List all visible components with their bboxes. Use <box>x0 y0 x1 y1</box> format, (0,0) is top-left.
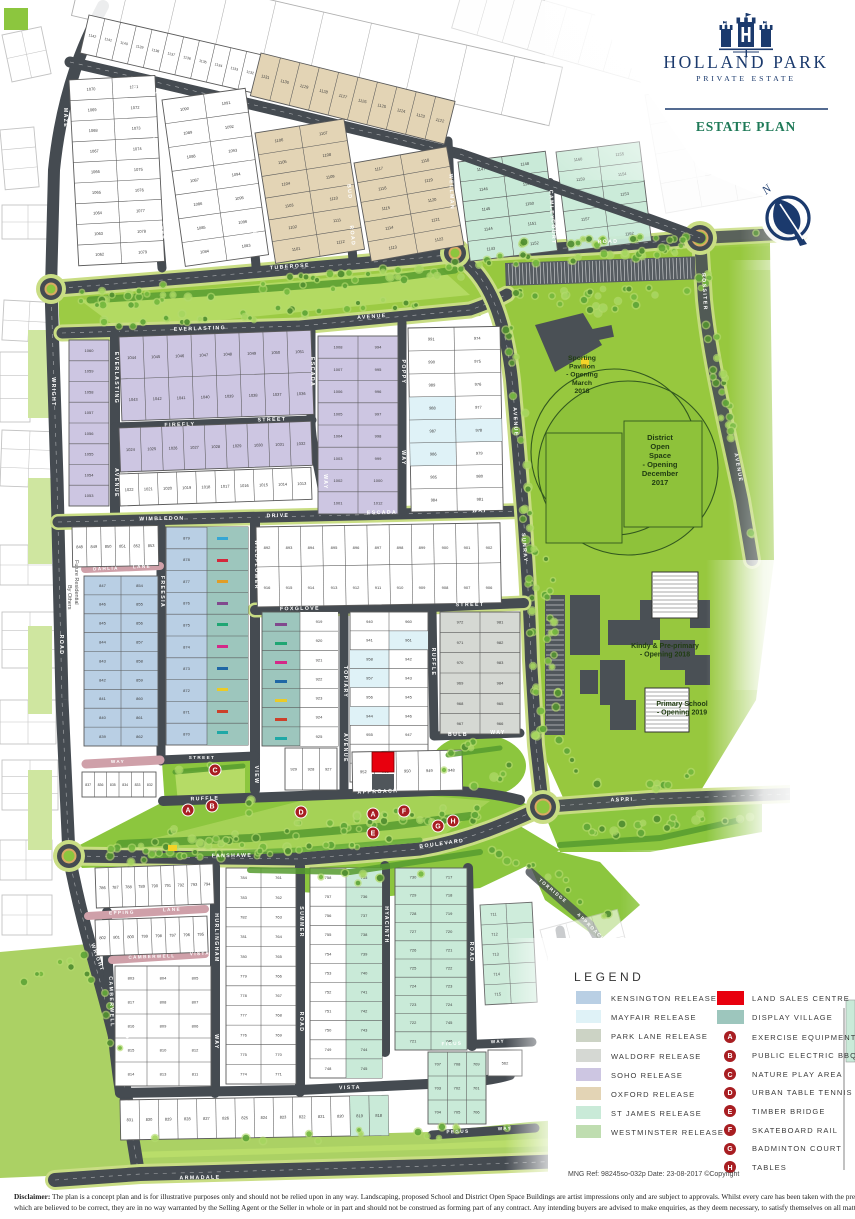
svg-text:804: 804 <box>160 975 167 980</box>
svg-text:909: 909 <box>419 585 426 590</box>
svg-text:1042: 1042 <box>153 396 163 401</box>
svg-text:FOXGLOVE: FOXGLOVE <box>280 606 320 613</box>
svg-text:1070: 1070 <box>86 86 96 91</box>
svg-text:715: 715 <box>494 991 502 996</box>
svg-text:960: 960 <box>405 619 412 624</box>
svg-text:858: 858 <box>136 658 143 663</box>
svg-text:908: 908 <box>442 585 449 590</box>
svg-text:PUBLIC ELECTRIC BBQ: PUBLIC ELECTRIC BBQ <box>752 1051 855 1060</box>
svg-text:801: 801 <box>113 935 121 940</box>
svg-text:CRESCENT: CRESCENT <box>64 158 70 198</box>
svg-text:981: 981 <box>477 497 485 502</box>
svg-text:1041: 1041 <box>177 395 187 400</box>
svg-text:ASPRI: ASPRI <box>610 797 633 804</box>
svg-text:WELLMAN: WELLMAN <box>447 174 454 210</box>
svg-text:WILDFLOWER: WILDFLOWER <box>253 540 259 590</box>
svg-text:1003: 1003 <box>334 456 344 461</box>
svg-text:811: 811 <box>192 1071 199 1076</box>
svg-text:MAYFAIR RELEASE: MAYFAIR RELEASE <box>611 1013 697 1022</box>
svg-text:707: 707 <box>434 1061 441 1066</box>
svg-text:ROAD: ROAD <box>597 239 618 246</box>
svg-text:873: 873 <box>183 666 190 671</box>
svg-text:846: 846 <box>99 602 106 607</box>
svg-text:1019: 1019 <box>182 485 192 490</box>
svg-text:- Opening: - Opening <box>566 372 598 379</box>
svg-text:B: B <box>727 1053 732 1060</box>
svg-text:741: 741 <box>361 990 368 995</box>
svg-text:762: 762 <box>275 895 282 900</box>
svg-text:853: 853 <box>148 543 156 548</box>
svg-text:1032: 1032 <box>296 441 306 446</box>
svg-text:921: 921 <box>316 657 323 662</box>
svg-text:852: 852 <box>133 543 141 548</box>
svg-text:Kindy & Pre-primary: Kindy & Pre-primary <box>631 643 699 650</box>
svg-text:798: 798 <box>155 933 163 938</box>
svg-text:720: 720 <box>446 929 453 934</box>
svg-text:776: 776 <box>240 1032 247 1037</box>
svg-text:789: 789 <box>138 884 146 889</box>
svg-text:944: 944 <box>366 713 373 718</box>
svg-text:723: 723 <box>446 984 453 989</box>
svg-text:723: 723 <box>410 1002 417 1007</box>
svg-text:948: 948 <box>448 768 456 773</box>
svg-text:769: 769 <box>275 1032 282 1037</box>
svg-text:851: 851 <box>119 543 127 548</box>
svg-text:914: 914 <box>308 585 315 590</box>
svg-text:FIREFLY: FIREFLY <box>164 421 195 428</box>
svg-text:915: 915 <box>286 585 293 590</box>
svg-text:EPPING: EPPING <box>109 910 135 916</box>
svg-text:1045: 1045 <box>151 354 161 359</box>
svg-text:969: 969 <box>457 681 464 686</box>
svg-text:HOLLAND PARK: HOLLAND PARK <box>663 52 828 72</box>
svg-text:ROAD: ROAD <box>298 1012 304 1033</box>
svg-text:861: 861 <box>136 715 143 720</box>
svg-text:806: 806 <box>192 1023 199 1028</box>
svg-text:777: 777 <box>240 1013 247 1018</box>
svg-text:812: 812 <box>192 1047 199 1052</box>
svg-text:ST JAMES RELEASE: ST JAMES RELEASE <box>611 1109 702 1118</box>
svg-text:E: E <box>371 830 376 837</box>
svg-text:927: 927 <box>325 766 332 771</box>
svg-text:1002: 1002 <box>334 478 344 483</box>
svg-text:E: E <box>728 1109 733 1116</box>
svg-text:906: 906 <box>486 585 493 590</box>
svg-text:WALDORF RELEASE: WALDORF RELEASE <box>611 1052 701 1061</box>
svg-text:1060: 1060 <box>85 348 95 353</box>
svg-text:1078: 1078 <box>137 229 147 234</box>
svg-text:896: 896 <box>353 545 360 550</box>
svg-text:721: 721 <box>446 947 453 952</box>
svg-text:H: H <box>450 818 455 825</box>
svg-text:- Opening: - Opening <box>643 460 678 469</box>
svg-text:976: 976 <box>475 382 483 387</box>
svg-text:737: 737 <box>361 913 368 918</box>
svg-text:985: 985 <box>430 474 438 479</box>
svg-text:832: 832 <box>147 783 153 787</box>
svg-text:996: 996 <box>375 389 382 394</box>
svg-text:745: 745 <box>446 1020 453 1025</box>
svg-text:919: 919 <box>316 619 323 624</box>
svg-text:752: 752 <box>325 990 332 995</box>
svg-text:EVERLASTING: EVERLASTING <box>113 352 119 404</box>
svg-text:898: 898 <box>397 545 404 550</box>
svg-text:826: 826 <box>222 1115 230 1120</box>
svg-text:AVENUE: AVENUE <box>113 468 119 498</box>
svg-text:913: 913 <box>331 585 338 590</box>
svg-text:Open: Open <box>650 442 670 451</box>
svg-text:878: 878 <box>183 557 190 562</box>
svg-text:724: 724 <box>410 984 417 989</box>
svg-text:796: 796 <box>183 932 191 937</box>
svg-text:701: 701 <box>473 1085 480 1090</box>
svg-text:1055: 1055 <box>85 452 95 457</box>
svg-text:943: 943 <box>405 676 412 681</box>
svg-text:STREET: STREET <box>257 416 286 423</box>
svg-text:728: 728 <box>410 911 417 916</box>
svg-text:952: 952 <box>360 769 368 774</box>
svg-text:982: 982 <box>497 640 504 645</box>
svg-text:945: 945 <box>405 694 412 699</box>
svg-text:961: 961 <box>405 638 412 643</box>
svg-text:823: 823 <box>280 1114 288 1119</box>
svg-text:784: 784 <box>240 875 247 880</box>
svg-text:892: 892 <box>264 545 271 550</box>
svg-text:940: 940 <box>366 619 373 624</box>
svg-text:983: 983 <box>497 660 504 665</box>
svg-text:1008: 1008 <box>334 345 344 350</box>
svg-text:750: 750 <box>325 1028 332 1033</box>
svg-text:856: 856 <box>136 621 143 626</box>
svg-text:978: 978 <box>475 428 483 433</box>
svg-text:793: 793 <box>191 882 199 887</box>
svg-text:899: 899 <box>419 545 426 550</box>
svg-text:703: 703 <box>434 1085 441 1090</box>
svg-text:922: 922 <box>316 676 323 681</box>
svg-text:ESCADA: ESCADA <box>309 357 315 387</box>
svg-text:WAY: WAY <box>491 1039 505 1044</box>
svg-text:1014: 1014 <box>278 482 288 487</box>
svg-text:1049: 1049 <box>247 351 257 356</box>
svg-text:781: 781 <box>240 934 247 939</box>
svg-text:1024: 1024 <box>126 447 136 452</box>
svg-text:834: 834 <box>122 783 128 787</box>
svg-text:803: 803 <box>128 975 135 980</box>
svg-text:824: 824 <box>261 1115 269 1120</box>
svg-text:835: 835 <box>110 783 116 787</box>
svg-text:1066: 1066 <box>91 169 101 174</box>
svg-text:1015: 1015 <box>259 482 269 487</box>
svg-text:816: 816 <box>128 1023 135 1028</box>
svg-text:876: 876 <box>183 601 190 606</box>
svg-text:840: 840 <box>99 715 106 720</box>
svg-text:987: 987 <box>429 428 437 433</box>
svg-text:ESCADA: ESCADA <box>367 510 397 517</box>
svg-text:1063: 1063 <box>94 231 104 236</box>
svg-text:754: 754 <box>325 951 332 956</box>
svg-text:770: 770 <box>275 1052 282 1057</box>
svg-text:721: 721 <box>410 1038 417 1043</box>
svg-text:787: 787 <box>112 885 120 890</box>
svg-text:1036: 1036 <box>297 391 307 396</box>
svg-text:1031: 1031 <box>275 442 285 447</box>
svg-text:1046: 1046 <box>175 353 185 358</box>
svg-text:724: 724 <box>446 1002 453 1007</box>
svg-text:B: B <box>209 803 214 810</box>
svg-text:855: 855 <box>136 602 143 607</box>
svg-text:HURLINGHAM: HURLINGHAM <box>213 913 219 962</box>
svg-text:950: 950 <box>404 768 412 773</box>
svg-text:1005: 1005 <box>334 411 344 416</box>
svg-text:756: 756 <box>325 913 332 918</box>
svg-text:862: 862 <box>136 734 143 739</box>
svg-text:901: 901 <box>464 545 471 550</box>
svg-text:Space: Space <box>649 451 671 460</box>
svg-text:1076: 1076 <box>135 187 145 192</box>
svg-text:736: 736 <box>361 894 368 899</box>
svg-text:WAY: WAY <box>322 474 328 490</box>
svg-text:949: 949 <box>426 768 434 773</box>
svg-text:763: 763 <box>275 915 282 920</box>
svg-text:910: 910 <box>397 585 404 590</box>
svg-text:850: 850 <box>105 544 113 549</box>
svg-text:1037: 1037 <box>273 392 283 397</box>
svg-text:778: 778 <box>240 993 247 998</box>
svg-text:828: 828 <box>184 1116 192 1121</box>
svg-text:1050: 1050 <box>271 350 281 355</box>
svg-text:FICUS: FICUS <box>441 1041 462 1047</box>
svg-text:839: 839 <box>99 734 106 739</box>
svg-text:EXERCISE EQUIPMENT: EXERCISE EQUIPMENT <box>752 1033 855 1042</box>
svg-text:998: 998 <box>375 434 382 439</box>
svg-text:NATURE PLAY AREA: NATURE PLAY AREA <box>752 1070 843 1079</box>
svg-text:971: 971 <box>457 640 464 645</box>
svg-text:854: 854 <box>136 583 143 588</box>
svg-text:DRIVE: DRIVE <box>267 513 290 519</box>
svg-text:837: 837 <box>85 783 91 787</box>
svg-text:1077: 1077 <box>136 208 146 213</box>
svg-text:911: 911 <box>375 585 382 590</box>
svg-text:872: 872 <box>183 688 190 693</box>
svg-text:1079: 1079 <box>138 249 148 254</box>
svg-text:STREET: STREET <box>455 602 484 609</box>
svg-text:786: 786 <box>99 885 107 890</box>
svg-text:1053: 1053 <box>85 493 95 498</box>
svg-text:783: 783 <box>240 895 247 900</box>
svg-text:Future Residential: Future Residential <box>73 560 79 605</box>
svg-text:719: 719 <box>446 911 453 916</box>
svg-text:900: 900 <box>442 545 449 550</box>
svg-text:979: 979 <box>476 451 484 456</box>
svg-text:1025: 1025 <box>147 446 157 451</box>
svg-text:WAY: WAY <box>400 450 406 466</box>
svg-text:URBAN TABLE TENNIS: URBAN TABLE TENNIS <box>752 1088 853 1097</box>
svg-text:895: 895 <box>331 545 338 550</box>
svg-text:829: 829 <box>165 1116 173 1121</box>
svg-text:By Others: By Others <box>66 585 72 610</box>
svg-text:1026: 1026 <box>168 445 178 450</box>
svg-text:KENSINGTON RELEASE: KENSINGTON RELEASE <box>611 994 717 1003</box>
svg-text:which are believed to be corre: which are believed to be correct, they a… <box>14 1203 855 1212</box>
svg-text:1018: 1018 <box>201 484 211 489</box>
svg-text:1016: 1016 <box>240 483 250 488</box>
svg-text:923: 923 <box>316 696 323 701</box>
svg-text:879: 879 <box>183 535 190 540</box>
svg-text:725: 725 <box>410 966 417 971</box>
svg-text:986: 986 <box>430 451 438 456</box>
svg-text:726: 726 <box>410 947 417 952</box>
svg-text:CAMLEY: CAMLEY <box>547 190 554 221</box>
svg-text:1029: 1029 <box>232 443 242 448</box>
svg-text:1057: 1057 <box>85 410 95 415</box>
svg-text:F: F <box>728 1127 733 1134</box>
svg-text:813: 813 <box>160 1071 167 1076</box>
svg-text:818: 818 <box>375 1113 383 1118</box>
svg-text:999: 999 <box>375 456 382 461</box>
svg-text:836: 836 <box>98 783 104 787</box>
svg-text:753: 753 <box>325 970 332 975</box>
svg-text:1020: 1020 <box>163 486 173 491</box>
svg-text:1051: 1051 <box>295 349 305 354</box>
svg-text:MNG Ref: 98245so-032p Date: 2: MNG Ref: 98245so-032p Date: 23-08-2017 ©… <box>568 1170 739 1178</box>
svg-text:HYACINTH: HYACINTH <box>383 906 389 944</box>
svg-text:712: 712 <box>491 931 499 936</box>
svg-text:912: 912 <box>353 585 360 590</box>
svg-text:874: 874 <box>183 644 190 649</box>
svg-text:WAY: WAY <box>213 1034 219 1050</box>
svg-text:902: 902 <box>486 545 493 550</box>
svg-text:STREET: STREET <box>189 755 216 760</box>
svg-text:702: 702 <box>454 1085 461 1090</box>
svg-text:820: 820 <box>337 1113 345 1118</box>
svg-text:1048: 1048 <box>223 351 233 356</box>
svg-text:805: 805 <box>192 975 199 980</box>
svg-text:1017: 1017 <box>221 484 231 489</box>
svg-text:1074: 1074 <box>133 146 143 151</box>
svg-text:831: 831 <box>127 1117 135 1122</box>
svg-text:711: 711 <box>490 912 497 917</box>
svg-text:972: 972 <box>457 620 464 625</box>
svg-text:ARMADALE: ARMADALE <box>179 1175 220 1182</box>
svg-text:842: 842 <box>99 677 106 682</box>
svg-text:946: 946 <box>405 713 412 718</box>
svg-text:D: D <box>727 1090 732 1097</box>
svg-text:1006: 1006 <box>334 389 344 394</box>
svg-text:LAND SALES CENTRE: LAND SALES CENTRE <box>752 994 850 1003</box>
svg-text:FANSHAWE: FANSHAWE <box>212 853 253 860</box>
svg-text:BADMINTON COURT: BADMINTON COURT <box>752 1144 842 1153</box>
svg-text:894: 894 <box>308 545 315 550</box>
svg-text:849: 849 <box>90 544 98 549</box>
svg-text:977: 977 <box>475 405 483 410</box>
svg-text:941: 941 <box>366 638 373 643</box>
svg-text:989: 989 <box>429 382 437 387</box>
svg-text:925: 925 <box>316 734 323 739</box>
svg-text:F: F <box>402 808 407 815</box>
svg-text:ROAD: ROAD <box>58 635 64 656</box>
svg-text:1030: 1030 <box>254 442 264 447</box>
svg-text:December: December <box>642 469 678 478</box>
svg-text:1004: 1004 <box>334 434 344 439</box>
svg-text:WAY: WAY <box>472 508 488 514</box>
svg-text:974: 974 <box>474 336 482 341</box>
svg-text:722: 722 <box>410 1020 417 1025</box>
svg-text:947: 947 <box>405 732 412 737</box>
svg-text:830: 830 <box>146 1117 154 1122</box>
svg-text:819: 819 <box>356 1113 364 1118</box>
svg-text:825: 825 <box>241 1115 249 1120</box>
svg-text:774: 774 <box>240 1072 247 1077</box>
svg-text:ESTATE PLAN: ESTATE PLAN <box>696 119 796 134</box>
svg-text:705: 705 <box>454 1109 461 1114</box>
svg-text:MAZE: MAZE <box>62 108 68 128</box>
svg-text:755: 755 <box>325 932 332 937</box>
svg-text:870: 870 <box>183 732 190 737</box>
svg-text:920: 920 <box>316 638 323 643</box>
svg-text:729: 729 <box>410 893 417 898</box>
svg-text:D: D <box>298 809 303 816</box>
svg-text:WAY: WAY <box>111 759 125 764</box>
svg-text:1075: 1075 <box>134 167 144 172</box>
svg-text:893: 893 <box>286 545 293 550</box>
svg-text:841: 841 <box>99 696 106 701</box>
svg-text:1038: 1038 <box>249 393 259 398</box>
svg-text:788: 788 <box>125 884 133 889</box>
svg-text:814: 814 <box>128 1071 135 1076</box>
svg-text:957: 957 <box>366 676 373 681</box>
svg-text:848: 848 <box>76 544 84 549</box>
svg-text:928: 928 <box>308 766 315 771</box>
svg-text:956: 956 <box>366 694 373 699</box>
svg-text:791: 791 <box>164 883 172 888</box>
svg-text:790: 790 <box>151 883 159 888</box>
svg-text:800: 800 <box>127 934 135 939</box>
svg-text:988: 988 <box>429 405 437 410</box>
svg-text:877: 877 <box>183 579 190 584</box>
svg-text:C: C <box>212 767 217 774</box>
svg-text:704: 704 <box>434 1109 441 1114</box>
svg-text:706: 706 <box>473 1109 480 1114</box>
svg-text:FREESIA: FREESIA <box>159 576 165 608</box>
svg-text:1056: 1056 <box>85 431 95 436</box>
svg-text:Pavilion: Pavilion <box>569 363 595 370</box>
svg-text:POPPY: POPPY <box>400 360 406 385</box>
svg-text:827: 827 <box>203 1116 211 1121</box>
svg-text:797: 797 <box>169 933 177 938</box>
svg-text:2017: 2017 <box>652 478 669 487</box>
svg-text:WAY: WAY <box>490 730 506 736</box>
svg-text:1022: 1022 <box>125 487 135 492</box>
svg-text:1064: 1064 <box>93 210 103 215</box>
svg-text:1007: 1007 <box>334 367 344 372</box>
svg-text:738: 738 <box>361 932 368 937</box>
svg-text:782: 782 <box>240 915 247 920</box>
svg-text:967: 967 <box>457 721 464 726</box>
svg-text:1012: 1012 <box>374 500 384 505</box>
svg-text:761: 761 <box>275 875 282 880</box>
svg-text:C: C <box>727 1072 732 1079</box>
svg-text:807: 807 <box>192 999 199 1004</box>
svg-text:BULB: BULB <box>448 732 468 738</box>
svg-text:833: 833 <box>135 783 141 787</box>
svg-text:1040: 1040 <box>201 394 211 399</box>
svg-text:1059: 1059 <box>85 369 95 374</box>
svg-text:766: 766 <box>275 973 282 978</box>
svg-text:ROAD: ROAD <box>468 942 474 963</box>
svg-text:916: 916 <box>264 585 271 590</box>
svg-text:751: 751 <box>325 1009 332 1014</box>
svg-text:966: 966 <box>497 721 504 726</box>
